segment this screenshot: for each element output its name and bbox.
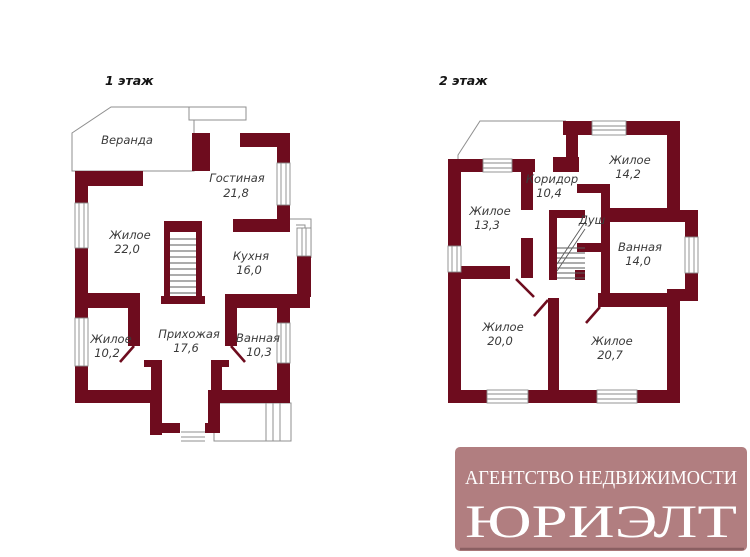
floor2-walls-part (626, 121, 680, 135)
room-label-vannaya1: Ванная (236, 331, 280, 345)
room-label-zhiloe-200: Жилое (481, 320, 523, 334)
roof-outline (458, 121, 566, 159)
floor2-labels: Жилое 13,3 Коридор 10,4 Жилое 14,2 Душ В… (468, 153, 662, 362)
window-part (487, 390, 528, 403)
door-leaf (120, 346, 134, 362)
window (487, 390, 528, 403)
floor1-walls-part (277, 308, 290, 323)
room-label-dush: Душ (578, 213, 606, 227)
floor1-walls-part (240, 133, 290, 147)
room-label-koridor: Коридор (526, 172, 578, 186)
door-leaf (534, 300, 548, 316)
window (592, 121, 626, 135)
floor2-title: 2 этаж (439, 73, 488, 88)
floor2-staircase-part (575, 270, 585, 280)
room-area-zhiloe-133: 13,3 (474, 218, 500, 232)
floor1-staircase-part (196, 232, 202, 297)
entry-porch-outline (189, 107, 246, 120)
room-label-kuhnya: Кухня (233, 249, 269, 263)
window (448, 246, 461, 272)
room-label-zhiloe-133: Жилое (468, 204, 510, 218)
room-label-veranda: Веранда (101, 133, 153, 147)
floor1-walls-part (162, 423, 180, 433)
floor1-walls-part (208, 390, 278, 403)
floor2-walls-part (667, 135, 680, 212)
bottom-steps-lines (181, 432, 205, 441)
window-part (448, 246, 461, 272)
floor1-walls-part (75, 366, 88, 403)
window-part (483, 159, 512, 172)
room-area-zhiloe-142: 14,2 (615, 167, 641, 181)
floor1-walls-part (151, 360, 162, 391)
floor2-walls-part (448, 159, 483, 172)
floor2-walls-part (521, 238, 533, 278)
room-area-koridor: 10,4 (536, 186, 562, 200)
window (277, 163, 290, 205)
floorplan-drawing: 1 этаж (0, 0, 750, 557)
floor1-walls-part (192, 133, 210, 171)
floor1-walls-part (75, 186, 88, 203)
floor2-walls-part (637, 390, 680, 403)
floor2-walls-part (528, 390, 597, 403)
floor1-staircase-part (161, 296, 205, 304)
floor2-walls-part (577, 243, 610, 252)
room-area-zhiloe-200: 20,0 (487, 334, 513, 348)
floor2-walls-part (598, 293, 680, 307)
room-area-zhiloe-22: 22,0 (114, 242, 140, 256)
floor1-plan: 1 этаж (72, 73, 311, 441)
window (75, 318, 88, 366)
floor1-walls-part (144, 360, 151, 367)
floor2-walls-part (563, 121, 592, 135)
window (75, 203, 88, 248)
floor1-title: 1 этаж (105, 73, 154, 88)
floor1-walls-part (222, 360, 229, 367)
agency-brand-line: ЮРИЭЛТ (465, 496, 737, 548)
window-part (277, 163, 290, 205)
room-label-zhiloe-207: Жилое (590, 334, 632, 348)
floor2-walls-part (667, 301, 680, 390)
room-area-vannaya1: 10,3 (246, 345, 272, 359)
floor1-walls-part (205, 423, 220, 433)
window (597, 390, 637, 403)
door-leaf (516, 279, 534, 297)
floor2-plan: 2 этаж (439, 73, 698, 403)
room-label-vannaya2: Ванная (618, 240, 662, 254)
room-area-prihozhaya: 17,6 (173, 341, 199, 355)
stair-treads (170, 239, 196, 293)
window (483, 159, 512, 172)
room-label-prihozhaya: Прихожая (158, 327, 220, 341)
floorplan-page: 1 этаж (0, 0, 750, 557)
floor2-walls-part (448, 272, 461, 390)
room-area-vannaya2: 14,0 (625, 254, 651, 268)
floor2-walls-part (608, 208, 667, 222)
door-leaf (586, 307, 600, 323)
floor2-walls-part (601, 252, 610, 293)
room-area-gostinaya: 21,8 (223, 186, 249, 200)
floor2-walls-part (685, 222, 698, 237)
floor1-walls-part (208, 403, 220, 423)
floor1-walls-part (233, 219, 290, 232)
floor1-staircase-part (164, 221, 202, 232)
window (685, 237, 698, 273)
floor1-staircase (161, 221, 205, 304)
window-part (75, 203, 88, 248)
room-area-zhiloe-10: 10,2 (94, 346, 120, 360)
floor1-walls (75, 133, 311, 435)
bottom-porch-outline (214, 403, 291, 441)
room-label-zhiloe-142: Жилое (608, 153, 650, 167)
window-part (592, 121, 626, 135)
floor2-walls-part (667, 210, 698, 222)
room-label-zhiloe-10: Жилое (89, 332, 131, 346)
floor2-walls-part (553, 157, 579, 172)
window-part (75, 318, 88, 366)
window-part (685, 237, 698, 273)
room-label-zhiloe-22: Жилое (108, 228, 150, 242)
floor1-walls-part (297, 256, 311, 297)
floor2-staircase-part (549, 210, 557, 280)
window (297, 228, 311, 256)
room-area-kuhnya: 16,0 (236, 263, 262, 277)
agency-watermark: АГЕНТСТВО НЕДВИЖИМОСТИ ЮРИЭЛТ (455, 447, 747, 551)
floor1-walls-part (211, 360, 222, 391)
floor2-walls-part (448, 172, 461, 246)
floor2-walls-part (448, 390, 487, 403)
door-leaf (231, 346, 245, 362)
floor1-walls-part (75, 293, 140, 308)
floor1-walls-part (225, 294, 310, 308)
window-part (597, 390, 637, 403)
agency-name-line: АГЕНТСТВО НЕДВИЖИМОСТИ (465, 467, 737, 489)
floor1-walls-part (75, 171, 143, 186)
floor1-staircase-part (164, 232, 170, 297)
room-area-zhiloe-207: 20,7 (597, 348, 623, 362)
window-part (297, 228, 311, 256)
floor1-walls-part (277, 147, 290, 163)
floor1-walls-part (150, 390, 162, 435)
floor1-walls-part (277, 363, 290, 403)
room-label-gostinaya: Гостиная (209, 171, 265, 185)
floor2-walls-part (548, 298, 559, 390)
